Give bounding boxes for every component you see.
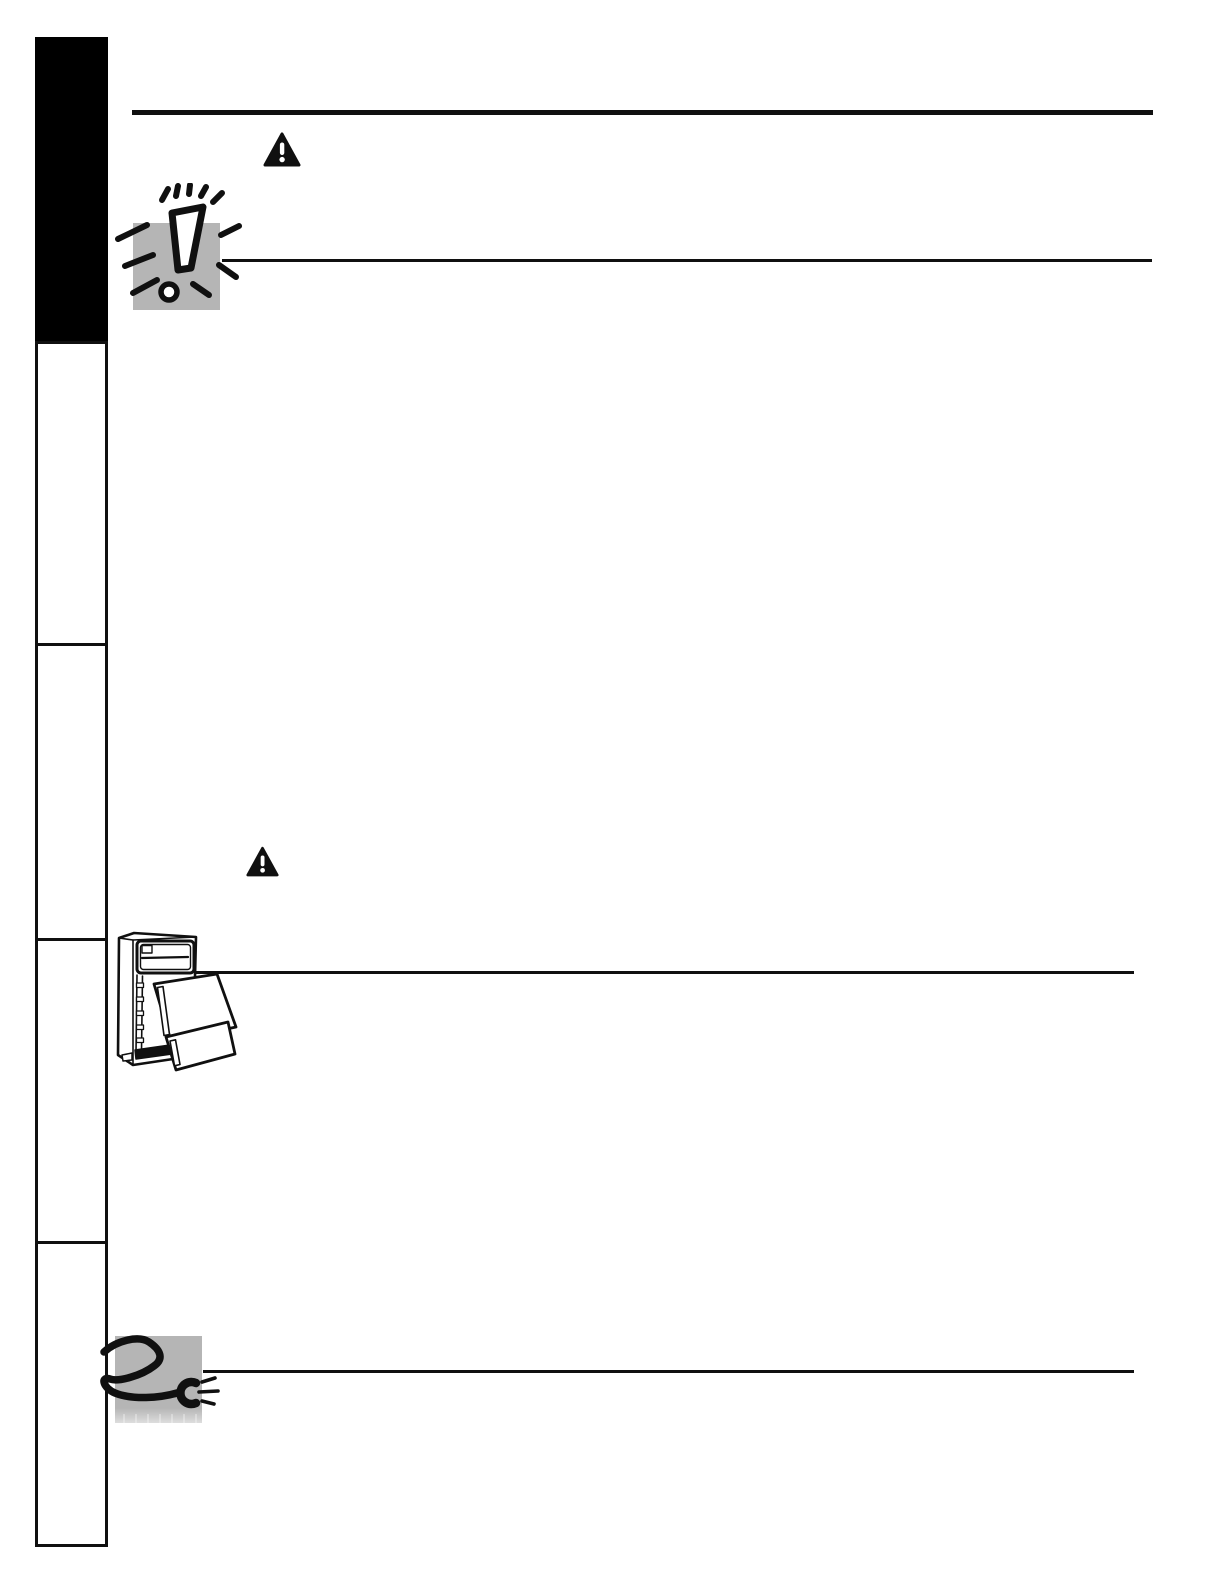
sidebar-tab-active-black — [35, 37, 108, 341]
sidebar-tab-3 — [35, 643, 108, 941]
section-rule-refrigerator — [196, 971, 1134, 974]
exclamation-burst-icon — [108, 183, 260, 323]
section-rule-exclamation — [222, 259, 1152, 262]
warning-triangle-icon — [246, 845, 279, 879]
manual-page — [0, 0, 1224, 1584]
sidebar-tab-4 — [35, 938, 108, 1244]
warning-triangle-icon — [263, 132, 301, 168]
sidebar-tab-2 — [35, 341, 108, 646]
power-cord-plug-icon — [98, 1332, 224, 1426]
section-rule-cord — [203, 1370, 1134, 1373]
refrigerator-doors-removed-icon — [114, 928, 244, 1076]
section-rule-top — [132, 110, 1153, 115]
